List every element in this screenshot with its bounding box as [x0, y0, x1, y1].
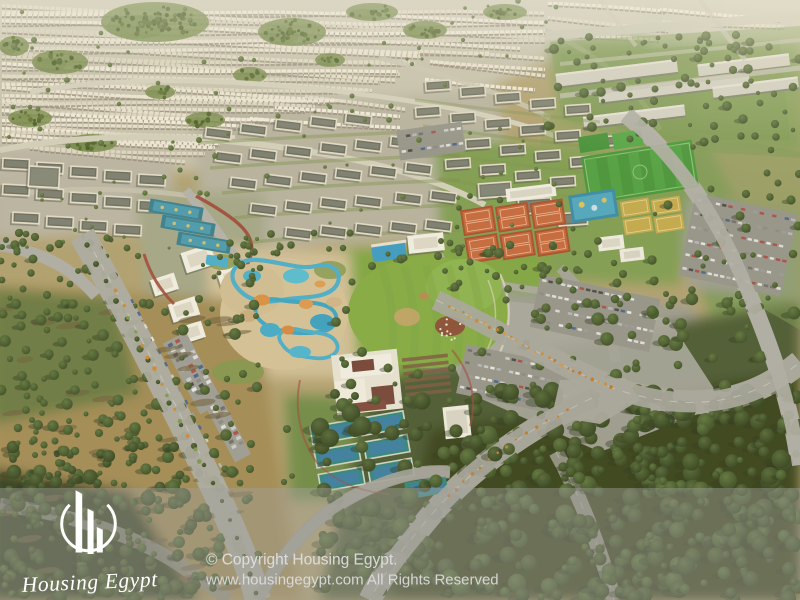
svg-text:© Copyright Housing Egypt.: © Copyright Housing Egypt. [206, 552, 398, 569]
svg-text:www.housingegypt.com All Right: www.housingegypt.com All Rights Reserved [205, 572, 499, 589]
